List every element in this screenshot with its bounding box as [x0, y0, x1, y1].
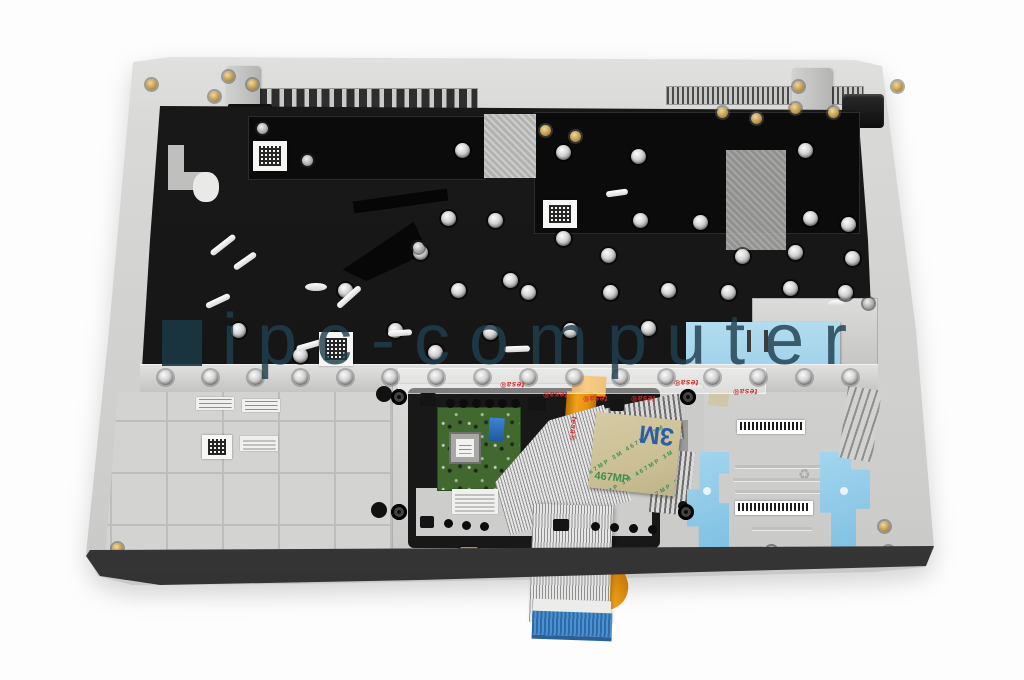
touchpad-mount-block: [420, 516, 434, 528]
touchpad-hole: [648, 525, 657, 534]
gold-screw: [828, 107, 839, 118]
tesa-label: tesa®: [733, 387, 757, 396]
plate-rivet: [693, 215, 708, 230]
gold-screw: [751, 113, 762, 124]
plate-rivet: [603, 285, 618, 300]
tesa-label: tesa®: [543, 390, 567, 399]
watermark-text: ipc-computer: [222, 302, 866, 378]
gold-screw: [146, 79, 157, 90]
plate-rivet: [488, 213, 503, 228]
watermark-block: [162, 320, 202, 366]
plate-oval-slot: [305, 283, 327, 291]
recycle-icon: ♻: [798, 466, 811, 483]
touchpad-hole: [444, 519, 453, 528]
touchpad-corner-pad: [680, 389, 696, 405]
plate-grommet-white: [193, 172, 219, 202]
plate-rivet: [783, 281, 798, 296]
plate-rivet: [556, 145, 571, 160]
plate-rivet: [845, 251, 860, 266]
chip-label: [456, 439, 474, 457]
pcb-pull-tab-blue: [488, 418, 505, 442]
touchpad-corner-pad: [678, 504, 694, 520]
plate-rivet: [838, 285, 853, 300]
touchpad-corner-pad: [391, 504, 407, 520]
plate-rivet: [633, 213, 648, 228]
touchpad-hole: [472, 399, 481, 408]
adhesive-sticker-3m: 467MP 3M 467MP 3M 467MP 3M 467MP 3M 467M…: [588, 412, 681, 497]
silver-screw: [302, 155, 313, 166]
gold-screw: [793, 81, 804, 92]
barcode-sticker-2: [735, 501, 813, 515]
engraved-text-line: [752, 527, 812, 530]
touchpad-mount-block: [528, 397, 546, 411]
plate-rivet: [503, 273, 518, 288]
tesa-label: tesa®: [583, 394, 607, 403]
gold-screw: [879, 521, 890, 532]
silver-screw: [257, 123, 268, 134]
touchpad-mount-block: [553, 519, 569, 531]
touchpad-hole: [462, 521, 471, 530]
plate-rivet: [661, 283, 676, 298]
touchpad-hole: [629, 524, 638, 533]
printed-label: [242, 399, 280, 412]
gold-screw: [540, 125, 551, 136]
grid-black-pad-2: [371, 502, 387, 518]
plate-rivet: [556, 231, 571, 246]
touchpad-hole: [459, 399, 468, 408]
qr-code-label: [202, 435, 232, 459]
printed-label: [240, 436, 278, 451]
plate-silver-gap: [484, 114, 536, 178]
printed-label: [452, 489, 498, 514]
gold-screw: [247, 79, 258, 90]
plate-rivet: [803, 211, 818, 226]
silver-screw: [413, 242, 424, 253]
touchpad-mount-block: [610, 399, 624, 411]
tesa-label: tesa®: [500, 380, 524, 389]
plate-crinkle-patch: [726, 150, 786, 250]
touchpad-hole: [480, 522, 489, 531]
touchpad-hole: [511, 399, 520, 408]
gold-screw: [790, 103, 801, 114]
plate-rivet: [798, 143, 813, 158]
touchpad-hole: [610, 523, 619, 532]
sticker-3m-code: 467MP: [594, 470, 630, 486]
plate-rivet: [451, 283, 466, 298]
jigsaw-hole-left: [703, 487, 711, 495]
printed-label: [196, 397, 234, 410]
touchpad-hole: [498, 399, 507, 408]
plate-rivet: [521, 285, 536, 300]
touchpad-hole: [446, 399, 455, 408]
touchpad-hole: [485, 399, 494, 408]
plate-rivet: [601, 248, 616, 263]
sticker-3m-logo: 3M: [638, 418, 676, 450]
barcode-sticker-1: [737, 420, 805, 434]
touchpad-corner-pad: [391, 389, 407, 405]
gold-screw: [717, 107, 728, 118]
touchpad-hole: [591, 522, 600, 531]
jigsaw-hole-right: [840, 487, 848, 495]
engraved-text-line: [733, 478, 828, 481]
plate-rivet: [631, 149, 646, 164]
flex-connector-blue: [532, 611, 613, 642]
product-photo-scene: 467MP 3M 467MP 3M 467MP 3M 467MP 3M 467M…: [0, 0, 1024, 680]
gold-screw: [223, 71, 234, 82]
rail-rivet: [203, 370, 218, 385]
rail-rivet: [158, 370, 173, 385]
engraved-text-line: [735, 490, 823, 493]
touchpad-mount-block: [420, 393, 436, 406]
plate-rivet: [455, 143, 470, 158]
gold-screw: [209, 91, 220, 102]
gold-screw: [570, 131, 581, 142]
plate-rivet: [841, 217, 856, 232]
vent-slots-left: [258, 88, 478, 110]
gold-screw: [892, 81, 903, 92]
grid-black-pad-1: [376, 386, 392, 402]
plate-rivet: [735, 249, 750, 264]
plate-rivet: [721, 285, 736, 300]
qr-code-label: [543, 200, 577, 228]
plate-rivet: [441, 211, 456, 226]
plate-rivet: [788, 245, 803, 260]
tesa-label: tesa®: [631, 394, 655, 403]
vent-slats-right: [666, 86, 864, 105]
qr-code-label: [253, 141, 287, 171]
